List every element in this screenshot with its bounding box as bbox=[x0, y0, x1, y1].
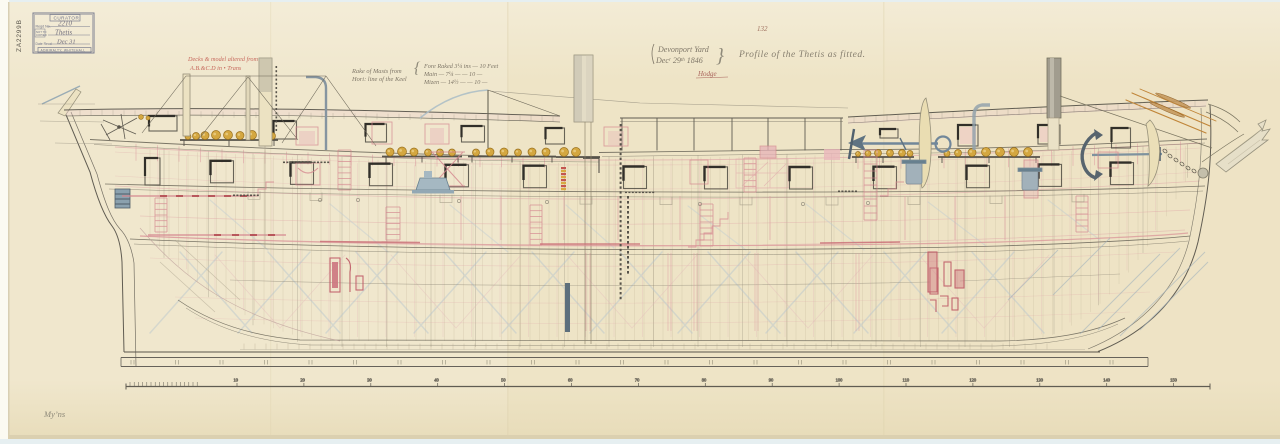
svg-text:80: 80 bbox=[702, 378, 707, 383]
svg-text:Devonport Yard: Devonport Yard bbox=[657, 45, 710, 54]
svg-text:Mizen — 14½ — — 10 —: Mizen — 14½ — — 10 — bbox=[423, 79, 488, 86]
svg-text:120: 120 bbox=[969, 378, 977, 383]
svg-text:140: 140 bbox=[1103, 378, 1111, 383]
svg-text:10: 10 bbox=[234, 378, 239, 383]
svg-text:50: 50 bbox=[501, 378, 506, 383]
svg-text:40: 40 bbox=[434, 378, 439, 383]
svg-text:2210: 2210 bbox=[58, 20, 73, 28]
svg-text:60: 60 bbox=[568, 378, 573, 383]
svg-text:Hori: line of the Keel: Hori: line of the Keel bbox=[351, 76, 407, 83]
svg-text:150: 150 bbox=[1170, 378, 1178, 383]
svg-text:{: { bbox=[414, 60, 421, 77]
svg-text:COPIED: COPIED bbox=[36, 33, 47, 37]
svg-text:A.B.&C.D in • Trans: A.B.&C.D in • Trans bbox=[189, 65, 242, 72]
svg-text:Rake of Masts from: Rake of Masts from bbox=[351, 68, 402, 75]
svg-text:ADMIRALTY, WHITEHALL: ADMIRALTY, WHITEHALL bbox=[41, 49, 86, 53]
svg-text:100: 100 bbox=[836, 378, 844, 383]
svg-text:Decr 29th 1846: Decr 29th 1846 bbox=[655, 56, 703, 65]
svg-text:Decks & model altered from: Decks & model altered from bbox=[187, 56, 259, 63]
svg-text:Dec 31: Dec 31 bbox=[56, 39, 76, 46]
svg-text:My’ns: My’ns bbox=[43, 409, 66, 419]
svg-text:Profile of the Thetis as fitt: Profile of the Thetis as fitted. bbox=[738, 49, 865, 60]
svg-text:Fore Raked 3¼ ins — 10 Feet: Fore Raked 3¼ ins — 10 Feet bbox=[423, 63, 498, 70]
svg-text:30: 30 bbox=[367, 378, 372, 383]
svg-text:130: 130 bbox=[1036, 378, 1044, 383]
svg-text:132: 132 bbox=[757, 25, 768, 33]
svg-text:110: 110 bbox=[903, 378, 910, 383]
svg-text:ZA2299B: ZA2299B bbox=[16, 19, 23, 52]
svg-text:Date Recd: Date Recd bbox=[36, 42, 52, 46]
svg-text:70: 70 bbox=[635, 378, 640, 383]
svg-text:Main — 7¼ — — 10 —: Main — 7¼ — — 10 — bbox=[423, 71, 483, 78]
svg-text:90: 90 bbox=[769, 378, 774, 383]
svg-text:Hodge: Hodge bbox=[697, 70, 717, 78]
svg-text:Thetis: Thetis bbox=[55, 29, 72, 37]
svg-text:20: 20 bbox=[300, 378, 305, 383]
svg-text:}: } bbox=[716, 45, 724, 67]
